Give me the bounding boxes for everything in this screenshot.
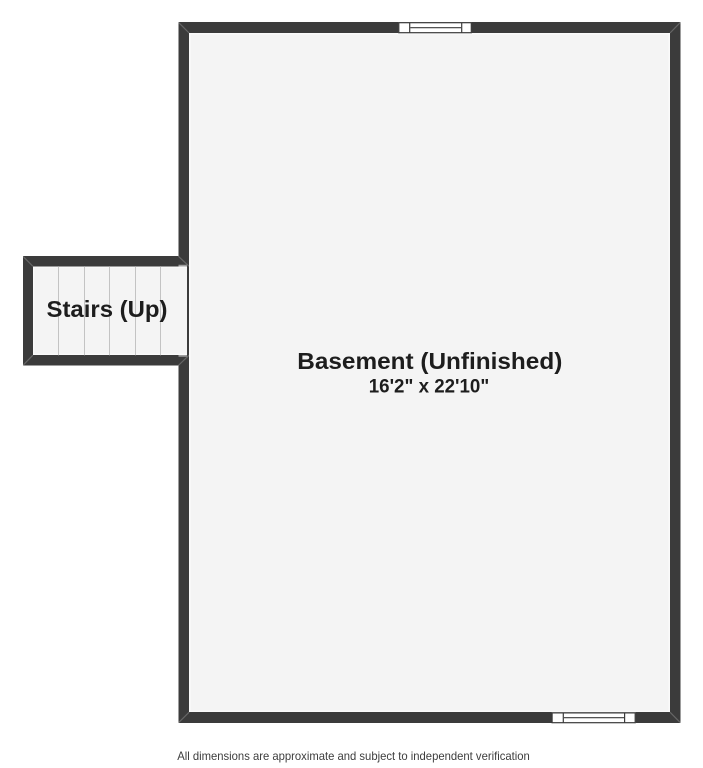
svg-text:16'2" x 22'10": 16'2" x 22'10" <box>369 376 490 397</box>
svg-text:All dimensions are approximate: All dimensions are approximate and subje… <box>177 750 530 763</box>
svg-text:Stairs (Up): Stairs (Up) <box>47 296 168 322</box>
svg-text:Basement (Unfinished): Basement (Unfinished) <box>297 348 562 374</box>
